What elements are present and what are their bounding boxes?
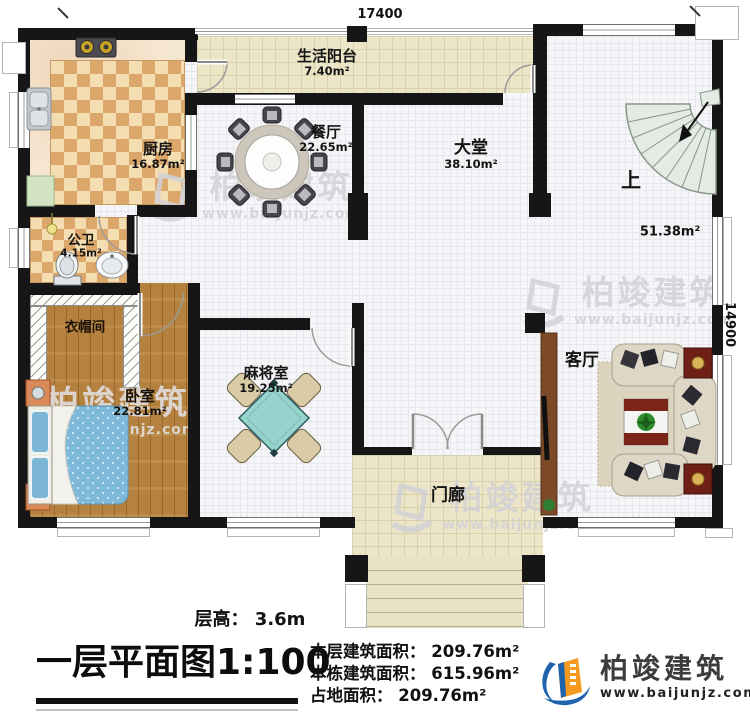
- floor-kitchen: [50, 60, 185, 205]
- floor-porch: [352, 455, 543, 557]
- pass-through-window: [185, 115, 197, 170]
- window: [583, 24, 675, 36]
- wall-column: [529, 193, 551, 217]
- window: [578, 517, 675, 528]
- corner-witness-box: [695, 6, 739, 40]
- brand-name: 柏竣建筑: [600, 655, 750, 683]
- room-label-mahjong: 麻将室 19.25m²: [239, 365, 292, 395]
- porch-column: [345, 555, 368, 582]
- window: [235, 94, 295, 104]
- wall-segment: [352, 303, 364, 455]
- window-sill: [578, 528, 675, 537]
- wall-segment: [185, 95, 197, 115]
- room-label-kitchen: 厨房 16.87m²: [131, 141, 184, 171]
- total-area-line: 本栋建筑面积： 615.96m²: [310, 663, 519, 685]
- floor-area-line: 本层建筑面积： 209.76m²: [310, 641, 519, 663]
- dimension-right: 14900: [722, 302, 737, 347]
- title-underline-thin: [36, 709, 298, 711]
- window-sill: [723, 355, 732, 465]
- room-label-cloakroom: 衣帽间: [65, 320, 106, 335]
- wall-segment: [525, 313, 545, 333]
- window: [57, 517, 150, 528]
- window-sill: [9, 228, 18, 268]
- corner-witness-box: [705, 528, 733, 538]
- dimension-tick: [57, 7, 68, 18]
- wall-segment: [533, 24, 547, 217]
- wall-segment: [18, 283, 140, 295]
- wall-segment: [197, 318, 310, 330]
- wall-column: [347, 26, 367, 42]
- room-label-living: 客厅: [565, 351, 599, 370]
- wall-segment: [185, 170, 197, 217]
- window: [712, 217, 723, 305]
- window: [18, 92, 30, 148]
- room-label-bathroom: 公卫 4.15m²: [60, 234, 101, 261]
- corner-witness-box: [2, 42, 26, 74]
- window-sill: [57, 528, 150, 537]
- room-label-balcony: 生活阳台 7.40m²: [297, 48, 357, 78]
- area-summary: 本层建筑面积： 209.76m² 本栋建筑面积： 615.96m² 占地面积： …: [310, 641, 519, 706]
- wall-segment: [18, 268, 30, 528]
- porch-steps: [366, 557, 528, 628]
- wall-column: [348, 193, 368, 240]
- dimension-top: 17400: [340, 7, 420, 22]
- wardrobe-hatch-left: [30, 306, 47, 388]
- wall-segment: [18, 28, 198, 40]
- window-sill: [227, 528, 320, 537]
- wall-segment: [712, 465, 723, 528]
- porch-side-rail: [523, 584, 545, 628]
- window: [227, 517, 320, 528]
- wall-segment: [127, 215, 138, 295]
- wall-segment: [18, 148, 30, 228]
- room-label-porch: 门廊: [431, 486, 465, 505]
- stairs-up-label: 上: [621, 169, 641, 191]
- floor-plan-page: 柏竣建筑www.baijunjz.com 柏竣建筑www.baijunjz.co…: [0, 0, 750, 720]
- brand-logo: 柏竣建筑 www.baijunjz.com: [534, 648, 750, 708]
- floor-balcony: [197, 36, 535, 93]
- title-underline: [36, 698, 298, 704]
- window: [18, 228, 30, 268]
- wall-segment: [320, 517, 355, 528]
- wall-segment: [543, 517, 578, 528]
- wall-segment: [185, 34, 197, 62]
- room-label-hall: 大堂 38.10m²: [444, 139, 497, 171]
- stairhall-area-label: 51.38m²: [640, 226, 700, 241]
- wall-segment: [483, 447, 543, 455]
- floor-height-note: 层高： 3.6m: [140, 605, 360, 631]
- window-sill: [723, 217, 732, 305]
- wardrobe-hatch-right: [123, 306, 140, 388]
- brand-url: www.baijunjz.com: [600, 686, 750, 701]
- wall-segment: [185, 93, 503, 105]
- window-sill: [9, 92, 18, 148]
- room-label-dining: 餐厅 22.65m²: [299, 124, 352, 154]
- wall-segment: [188, 283, 200, 528]
- brand-logo-icon: [534, 648, 594, 708]
- wall-segment: [712, 24, 723, 217]
- window: [712, 355, 723, 465]
- porch-column: [522, 555, 545, 582]
- footprint-line: 占地面积： 209.76m²: [310, 685, 519, 707]
- room-label-bedroom: 卧室 22.81m²: [113, 388, 166, 418]
- plan-title: 一层平面图1:100: [36, 633, 304, 685]
